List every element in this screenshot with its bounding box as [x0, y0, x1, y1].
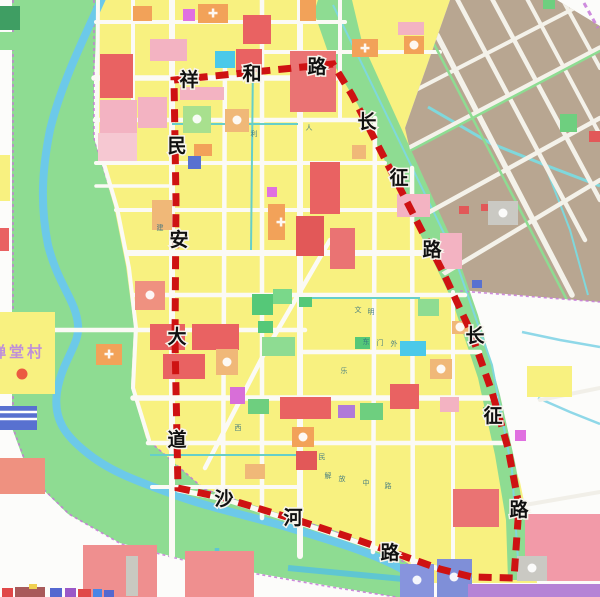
- facility-circle-icon: [193, 115, 202, 124]
- street-char: 解: [325, 471, 332, 480]
- road-label-char: 长: [465, 325, 485, 347]
- road-label-char: 路: [380, 541, 400, 564]
- facility-circle-icon: [233, 116, 242, 125]
- road-label-char: 祥: [179, 68, 198, 91]
- road-label-char: 征: [483, 404, 502, 427]
- village-label: 禅堂村: [0, 343, 45, 361]
- street-char: 乐: [341, 366, 348, 375]
- planning-map-image: 东 门 外 文 明 乐 民 解 放 中 路 西 建 利 人 祥 和 路 民 安 …: [0, 0, 600, 597]
- street-char: 文: [355, 305, 362, 314]
- road-label-char: 征: [389, 166, 408, 189]
- facility-circle-icon: [450, 573, 459, 582]
- village-dot: [17, 369, 28, 380]
- road-label-char: 大: [167, 325, 186, 348]
- road-label-char: 沙: [214, 488, 233, 510]
- street-char: 人: [306, 124, 313, 132]
- street-char: 路: [385, 481, 392, 490]
- facility-circle-icon: [223, 358, 232, 367]
- street-char: 利: [251, 129, 258, 138]
- facility-circle-icon: [456, 323, 465, 332]
- facility-circle-icon: [299, 433, 308, 442]
- facility-circle-icon: [437, 365, 446, 374]
- street-char: 建: [157, 223, 164, 232]
- stream: [538, 398, 600, 424]
- street-char: 中: [363, 478, 370, 487]
- street-char: 门: [377, 338, 384, 347]
- facility-circle-icon: [528, 564, 537, 573]
- street-char: 放: [339, 474, 346, 483]
- street-char: 东: [363, 337, 370, 346]
- road-label-char: 民: [167, 135, 186, 157]
- stream: [522, 332, 600, 347]
- facility-circle-icon: [146, 291, 155, 300]
- road-label-char: 路: [509, 498, 529, 521]
- street-char: 西: [235, 424, 242, 432]
- street-char: 明: [368, 308, 375, 316]
- street-char: 外: [391, 339, 398, 348]
- street-char: 民: [319, 453, 326, 461]
- map-canvas: 东 门 外 文 明 乐 民 解 放 中 路 西 建 利 人 祥 和 路 民 安 …: [0, 0, 600, 597]
- facility-circle-icon: [410, 41, 419, 50]
- road-label-char: 和: [242, 62, 261, 85]
- road-label-char: 河: [283, 507, 302, 529]
- road-label-char: 路: [307, 55, 327, 78]
- road-label-char: 道: [167, 428, 186, 451]
- road-label-char: 路: [422, 238, 442, 261]
- road-label-char: 长: [357, 111, 377, 133]
- road-label-char: 安: [169, 228, 188, 251]
- facility-circle-icon: [499, 209, 508, 218]
- facility-circle-icon: [413, 576, 422, 585]
